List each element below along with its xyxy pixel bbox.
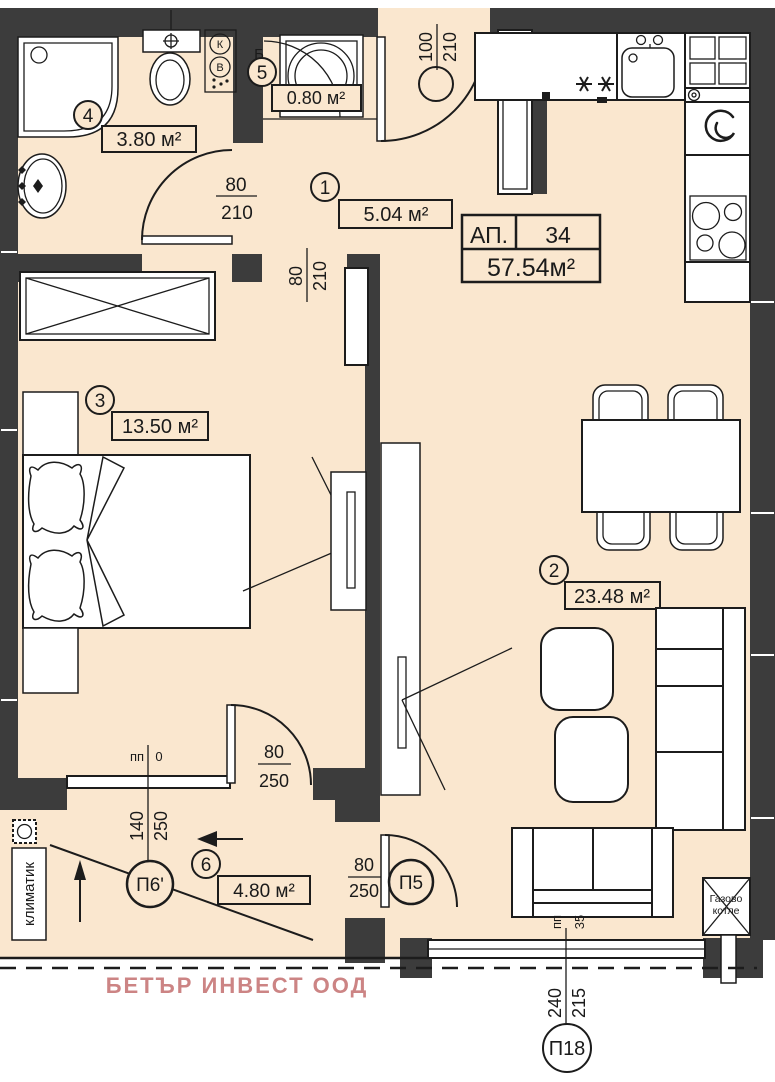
ac-label: климатик: [21, 862, 38, 926]
p5-width: 80: [354, 855, 374, 875]
ac-outdoor-unit-icon: [13, 820, 36, 843]
room-1-area: 5.04 м²: [364, 204, 429, 226]
nightstand: [23, 628, 78, 693]
wall-balcony-living-stub: [345, 918, 385, 963]
p18-sill-height: 35: [572, 915, 587, 929]
shower-cabin: [18, 37, 118, 137]
entrance-door-height: 210: [440, 32, 460, 62]
room-2-area: 23.48 м²: [574, 586, 650, 608]
sliding-door-panel: [345, 268, 368, 365]
apartment-total-area: 57.54м²: [487, 254, 575, 282]
wall-central: [365, 332, 380, 770]
room-4-area: 3.80 м²: [117, 129, 182, 151]
sofa-right: [656, 608, 745, 830]
room-3-area: 13.50 м²: [122, 416, 198, 438]
room-6-area: 4.80 м²: [233, 881, 295, 902]
bathroom-door-width: 80: [225, 175, 246, 196]
wall-balcony-top-stub: [0, 778, 67, 810]
p18-height: 215: [569, 988, 589, 1018]
tv-panel-bedroom: [331, 472, 366, 610]
room-1-number: 1: [320, 178, 331, 199]
room-4-number: 4: [83, 106, 94, 127]
apartment-number: 34: [545, 222, 571, 248]
bed: [23, 455, 250, 628]
wall-central-bottom2: [335, 800, 380, 822]
entrance-door-leaf: [377, 37, 385, 141]
p6-sill-label: пп: [130, 749, 144, 764]
bedroom-balcony-door-height: 250: [259, 771, 289, 791]
bedroom-door-width: 80: [286, 266, 306, 286]
p18-id: П18: [549, 1038, 586, 1060]
dining-table: [582, 420, 740, 512]
boiler-label-2: котле: [713, 905, 740, 917]
nightstand: [23, 392, 78, 455]
p6-sill-height: 0: [155, 749, 162, 764]
room-3-number: 3: [95, 391, 106, 412]
wardrobe: [20, 272, 215, 340]
watermark: БЕТЪР ИНВЕСТ ООД: [106, 973, 369, 998]
room-5-number: 5: [257, 63, 268, 84]
bathroom-sink: [18, 154, 66, 218]
bathroom-door-height: 210: [221, 203, 253, 224]
p6-id: П6': [136, 875, 164, 896]
room-2-number: 2: [549, 561, 560, 582]
living-balcony-door-leaf: [381, 835, 389, 907]
apartment-card: АП. 34 57.54м²: [462, 215, 600, 282]
entrance-door-width: 100: [416, 32, 436, 62]
coffee-table: [555, 717, 628, 802]
shaft-v-label: В: [216, 62, 223, 74]
kitchen-column: [685, 33, 750, 302]
p6-height: 250: [151, 811, 171, 841]
p18-width: 240: [545, 988, 565, 1018]
p18-sill-label: пп: [549, 915, 564, 929]
wall-left: [0, 8, 18, 810]
boiler-label-1: Газово: [710, 893, 743, 905]
room-5-area: 0.80 м²: [287, 88, 345, 108]
sofa-bottom: [512, 828, 673, 917]
room-6-number: 6: [201, 855, 212, 876]
bedroom-balcony-door-width: 80: [264, 742, 284, 762]
p6-width: 140: [127, 811, 147, 841]
balcony-door-leaf: [227, 705, 235, 783]
boiler-flue: [721, 935, 736, 983]
tv-panel-living: [381, 443, 420, 795]
coffee-table: [541, 628, 613, 710]
pillow: [29, 462, 85, 533]
bathroom-door-leaf: [142, 236, 232, 244]
p5-height: 250: [349, 881, 379, 901]
wall-central-bottom1: [313, 768, 380, 800]
p5-id: П5: [399, 873, 423, 894]
wall-right: [750, 8, 775, 940]
floor-plan: К В 4 3.80 м² Б 5 0.80 м²: [0, 0, 775, 1082]
wall-bath-bottom-stub: [232, 254, 262, 282]
apartment-label: АП.: [470, 222, 508, 248]
pillow: [29, 550, 85, 621]
bedroom-door-height: 210: [310, 261, 330, 291]
shaft-k-label: К: [217, 39, 224, 51]
